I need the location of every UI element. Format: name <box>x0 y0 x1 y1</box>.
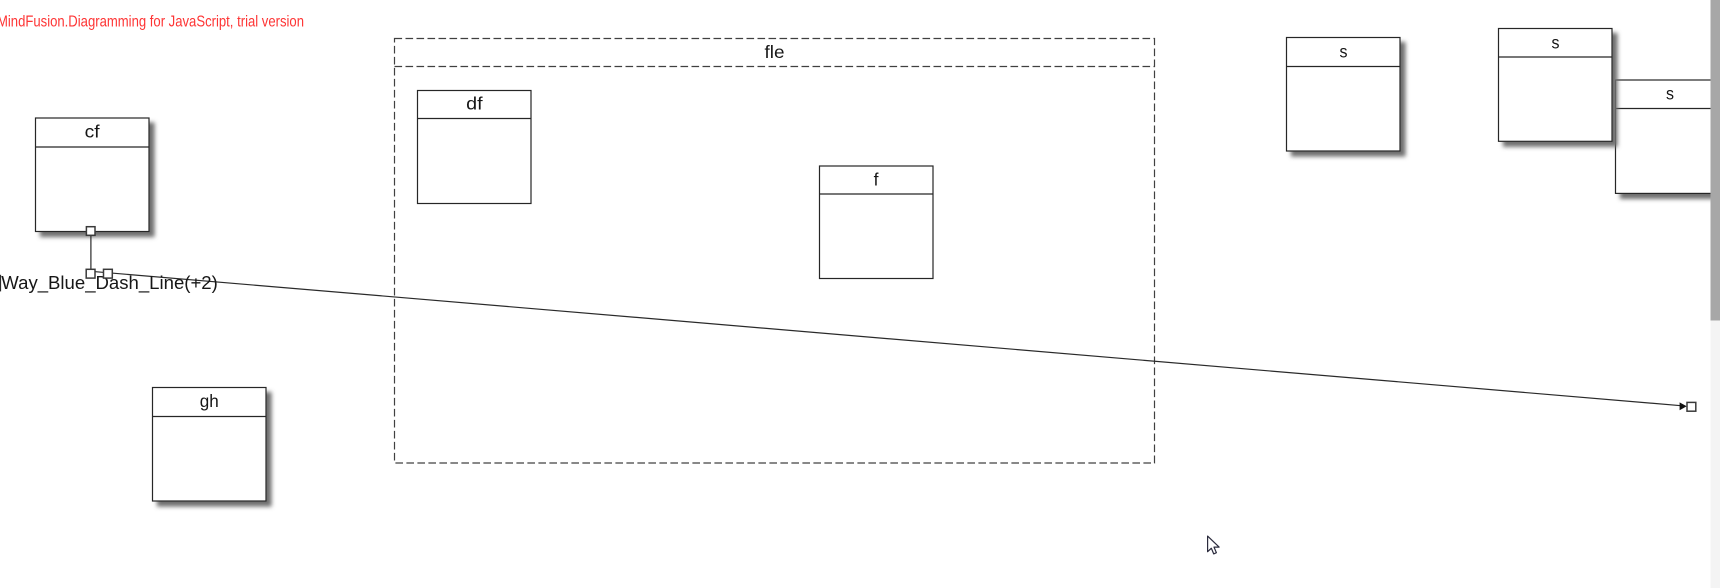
svg-text:s: s <box>1552 32 1560 52</box>
svg-text:cf: cf <box>85 122 100 142</box>
svg-text:gh: gh <box>200 391 219 411</box>
svg-text:f: f <box>874 169 879 189</box>
svg-text:s: s <box>1666 83 1674 103</box>
svg-text:fle: fle <box>765 42 785 62</box>
svg-text:MindFusion.Diagramming for Jav: MindFusion.Diagramming for JavaScript, t… <box>0 13 304 30</box>
svg-text:df: df <box>466 94 483 114</box>
svg-text:s: s <box>1340 41 1348 61</box>
